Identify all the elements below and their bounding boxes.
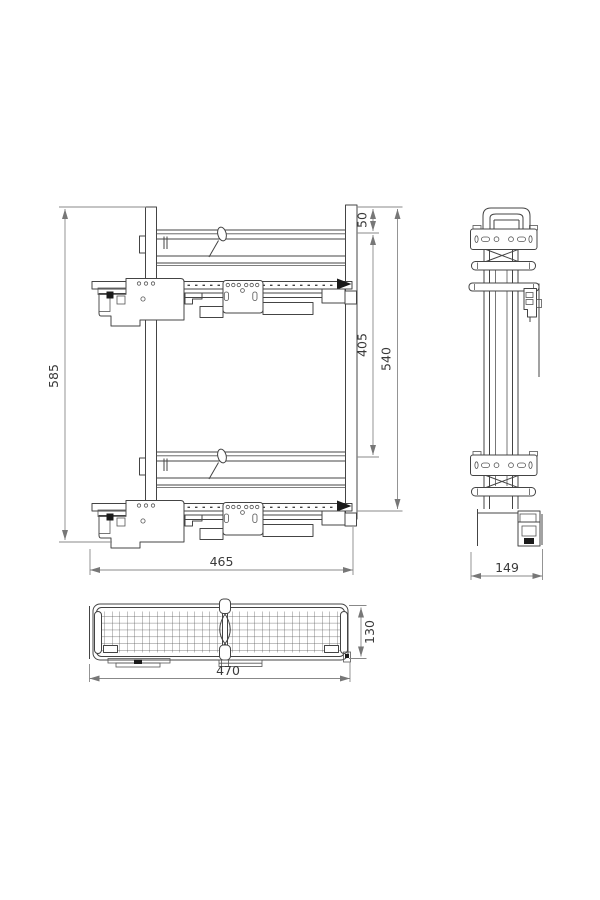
dimension-basket-length: 470 bbox=[90, 662, 351, 682]
latch-hook bbox=[185, 293, 202, 304]
dim-label-top-gap: 50 bbox=[354, 212, 369, 228]
front-view bbox=[469, 208, 542, 546]
dim-label-rail-span: 405 bbox=[354, 333, 369, 357]
top-rail bbox=[157, 230, 346, 239]
bottom-slide-assembly bbox=[478, 509, 543, 546]
dim-label-side-depth: 465 bbox=[210, 554, 234, 569]
shelf-assembly-upper bbox=[92, 226, 357, 326]
dim-label-basket-length: 470 bbox=[216, 663, 240, 678]
dimension-total-height: 585 bbox=[46, 207, 146, 542]
dim-label-total-height: 585 bbox=[46, 364, 61, 388]
divider-clip-top bbox=[220, 599, 231, 614]
clip-right bbox=[325, 646, 339, 653]
left-post bbox=[146, 207, 157, 512]
clip-left bbox=[104, 646, 118, 653]
post-fitting bbox=[140, 236, 146, 253]
side-view bbox=[92, 205, 357, 548]
mounting-plate bbox=[471, 229, 538, 250]
rail-end-cap bbox=[322, 289, 345, 303]
dimension-rail-span: 405 bbox=[354, 235, 379, 457]
mounting-plate-unit-lower bbox=[471, 452, 538, 497]
slide-mechanism bbox=[92, 279, 357, 327]
dimension-top-gap: 50 bbox=[354, 207, 402, 233]
dimension-front-width: 149 bbox=[471, 549, 543, 580]
divider-clip-bottom bbox=[220, 645, 231, 660]
dimension-frame-height: 540 bbox=[357, 209, 403, 511]
dim-label-front-width: 149 bbox=[495, 560, 519, 575]
cross-bar bbox=[472, 262, 536, 271]
dim-label-basket-depth: 130 bbox=[362, 620, 377, 644]
side-rail-right bbox=[341, 612, 348, 654]
technical-drawing-page: 585 50 405 540 465 149 470 1 bbox=[0, 0, 600, 900]
side-rail-left bbox=[95, 612, 102, 654]
dim-label-frame-height: 540 bbox=[378, 347, 393, 371]
rail-end-cap-outer bbox=[345, 291, 357, 304]
dimension-basket-depth: 130 bbox=[349, 606, 377, 659]
technical-drawing: 585 50 405 540 465 149 470 1 bbox=[0, 0, 600, 900]
mounting-plate-unit-upper bbox=[471, 226, 538, 271]
shelf-assembly-lower bbox=[92, 448, 357, 548]
right-post bbox=[346, 205, 358, 519]
arch-frame bbox=[483, 208, 530, 229]
top-view bbox=[90, 599, 351, 667]
back-rail bbox=[157, 256, 346, 263]
